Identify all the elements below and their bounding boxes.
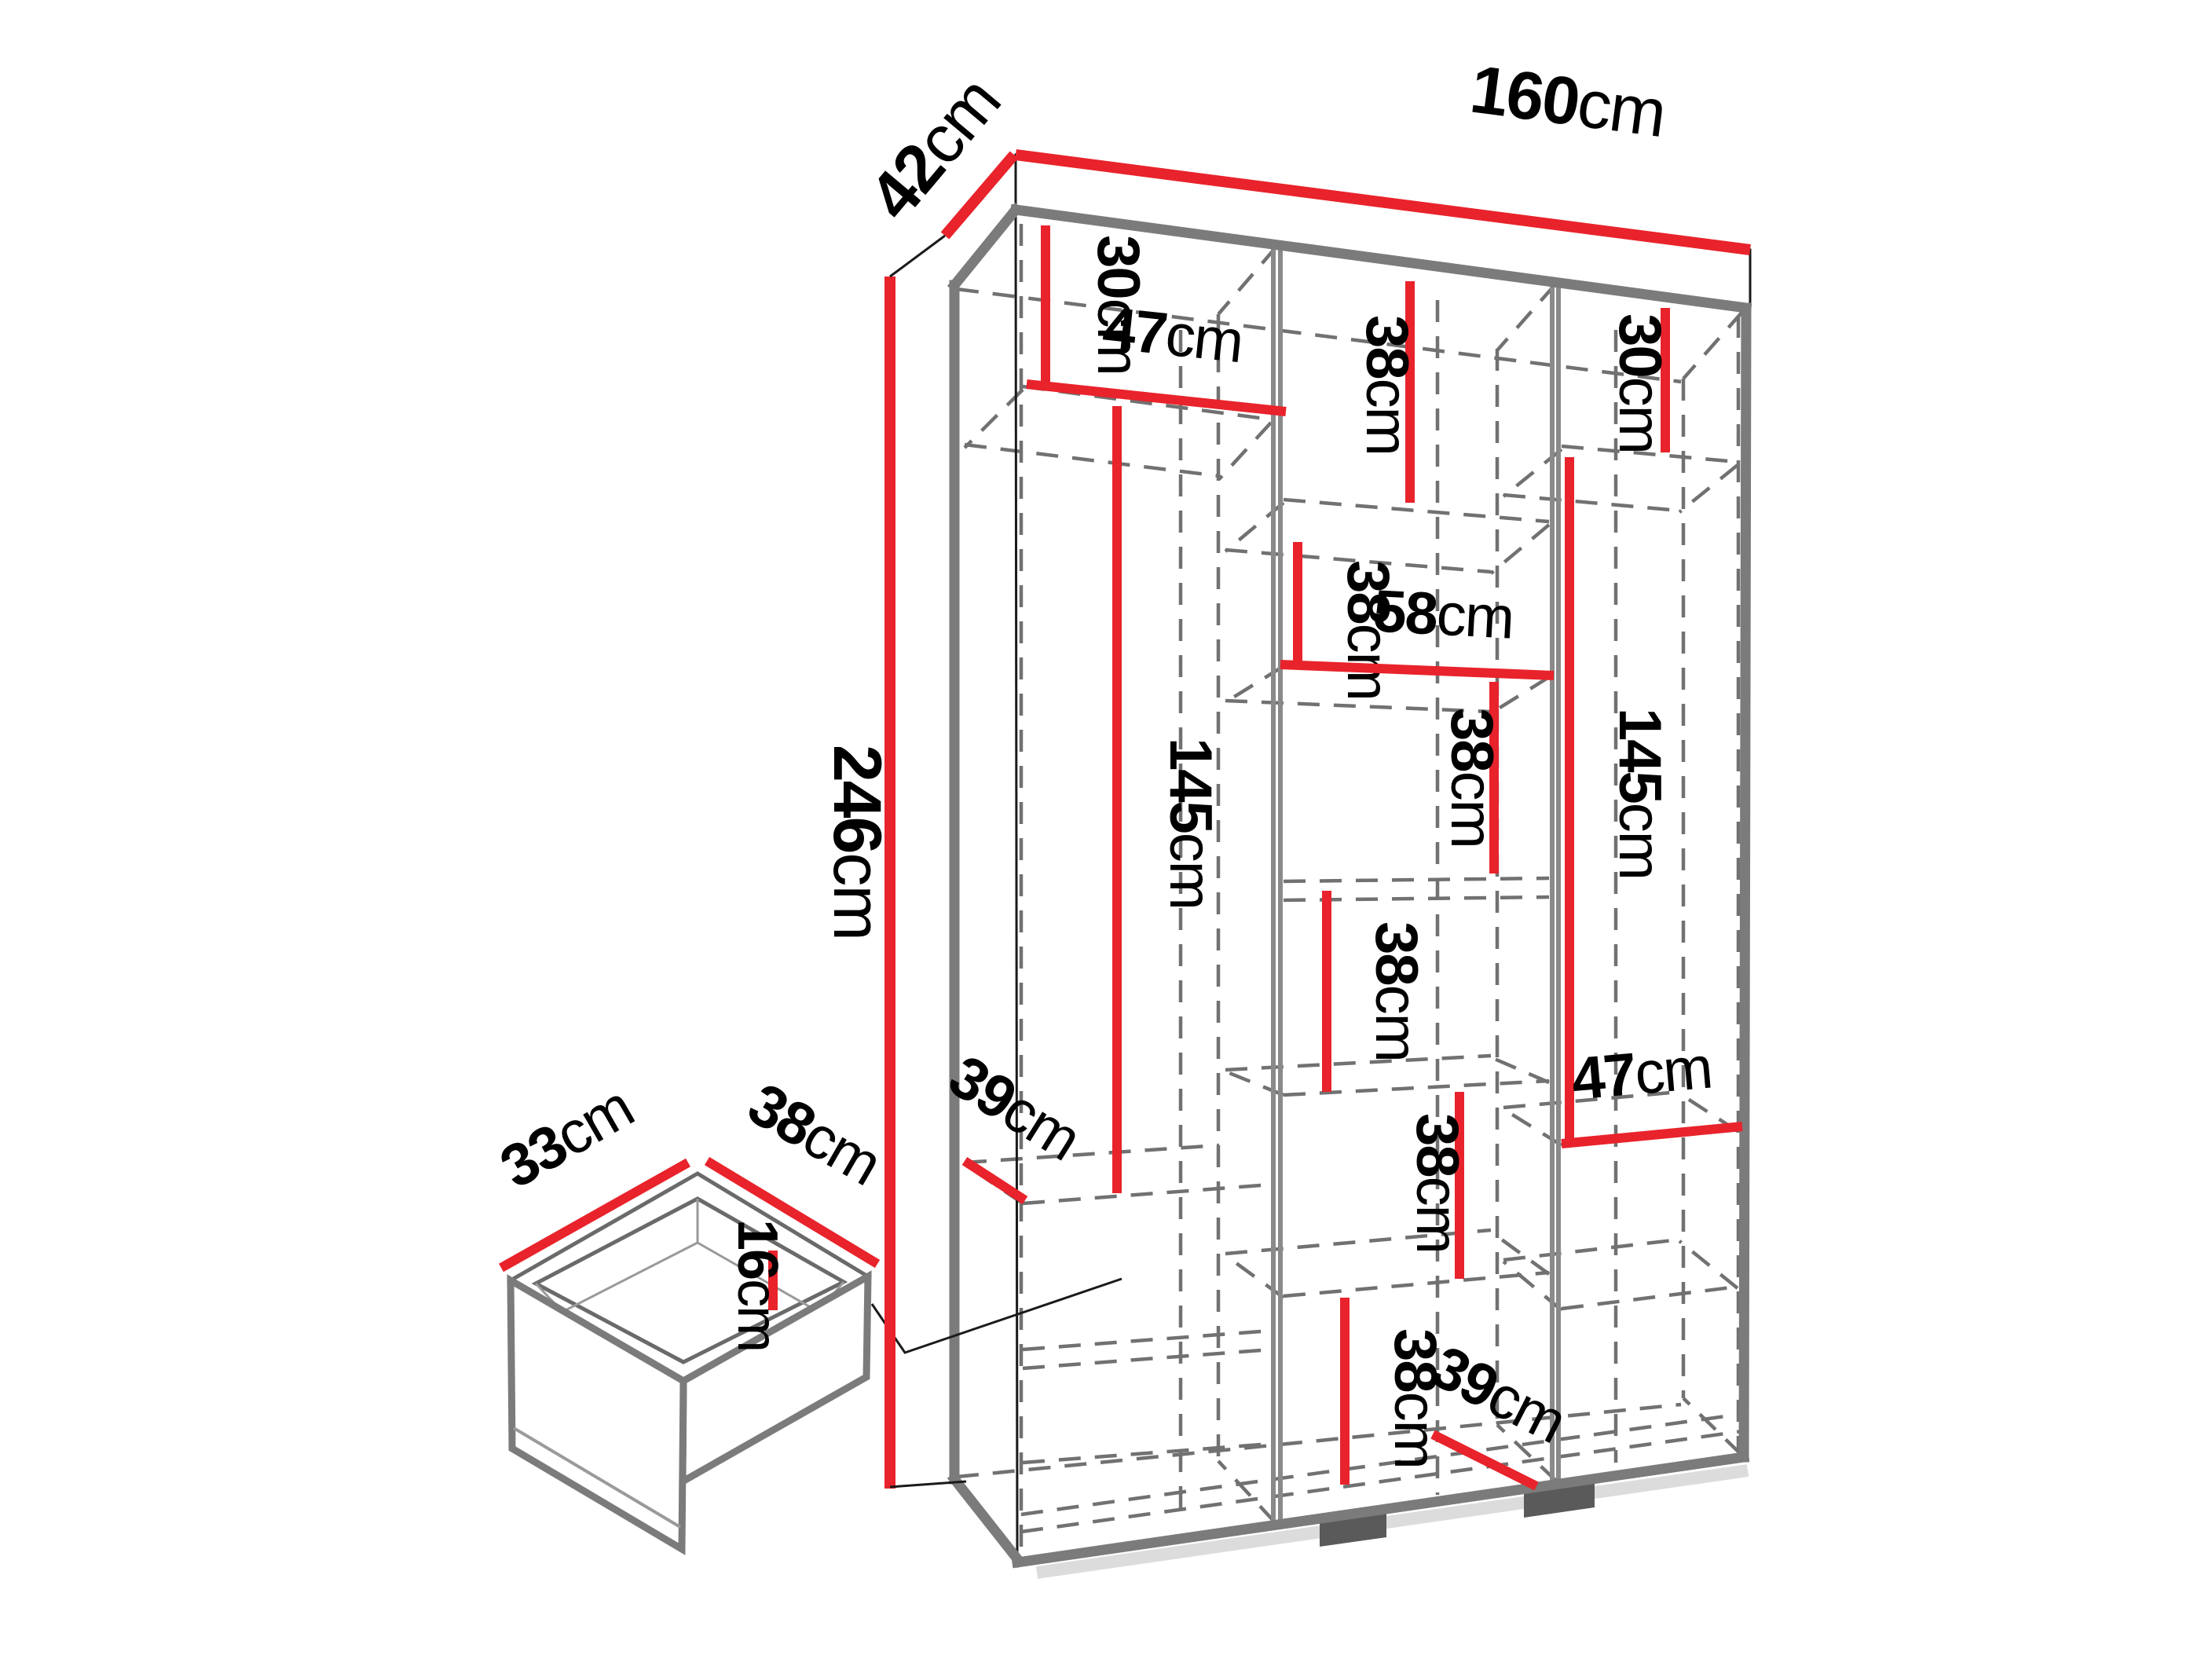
dim-label-right-47: 47cm — [1569, 1035, 1714, 1113]
dim-label-mid-38-4: 38cm — [1363, 921, 1430, 1061]
dim-label-mid-58: 58cm — [1372, 577, 1514, 651]
dim-label-drawer-38: 38cm — [737, 1071, 892, 1199]
dim-overall-depth: 42cm — [855, 64, 1015, 236]
dim-label-mid-38-1: 38cm — [1353, 315, 1420, 455]
dim-right-top-30: 30cm — [1606, 308, 1673, 453]
drawer-inset: 33cm 38cm 16cm — [489, 1071, 892, 1549]
dim-label-drawer-16: 16cm — [726, 1219, 789, 1351]
dim-label-42: 42cm — [855, 64, 1015, 234]
dim-label-mid-38-5: 38cm — [1404, 1113, 1470, 1253]
dim-label-right-145: 145cm — [1606, 708, 1673, 879]
dim-label-left-145: 145cm — [1157, 738, 1224, 909]
left-side-panel — [954, 210, 1019, 1561]
dim-mid-38-3: 38cm — [1438, 682, 1505, 873]
dim-mid-38-5: 38cm — [1404, 1092, 1470, 1279]
dim-label-246: 246cm — [819, 745, 895, 939]
dim-label-drawer-33: 33cm — [489, 1074, 644, 1202]
diagram-canvas: 160cm 42cm 246cm 30cm 47cm 145cm 39cm 38… — [0, 0, 2212, 1659]
front-right-edge — [1744, 308, 1746, 1457]
front-left-edge — [1016, 210, 1017, 1562]
wardrobe-dimension-diagram: 160cm 42cm 246cm 30cm 47cm 145cm 39cm 38… — [0, 0, 2212, 1659]
dim-label-mid-38-3: 38cm — [1438, 708, 1505, 848]
dim-label-160: 160cm — [1467, 51, 1670, 152]
dim-label-right-30: 30cm — [1606, 313, 1673, 453]
